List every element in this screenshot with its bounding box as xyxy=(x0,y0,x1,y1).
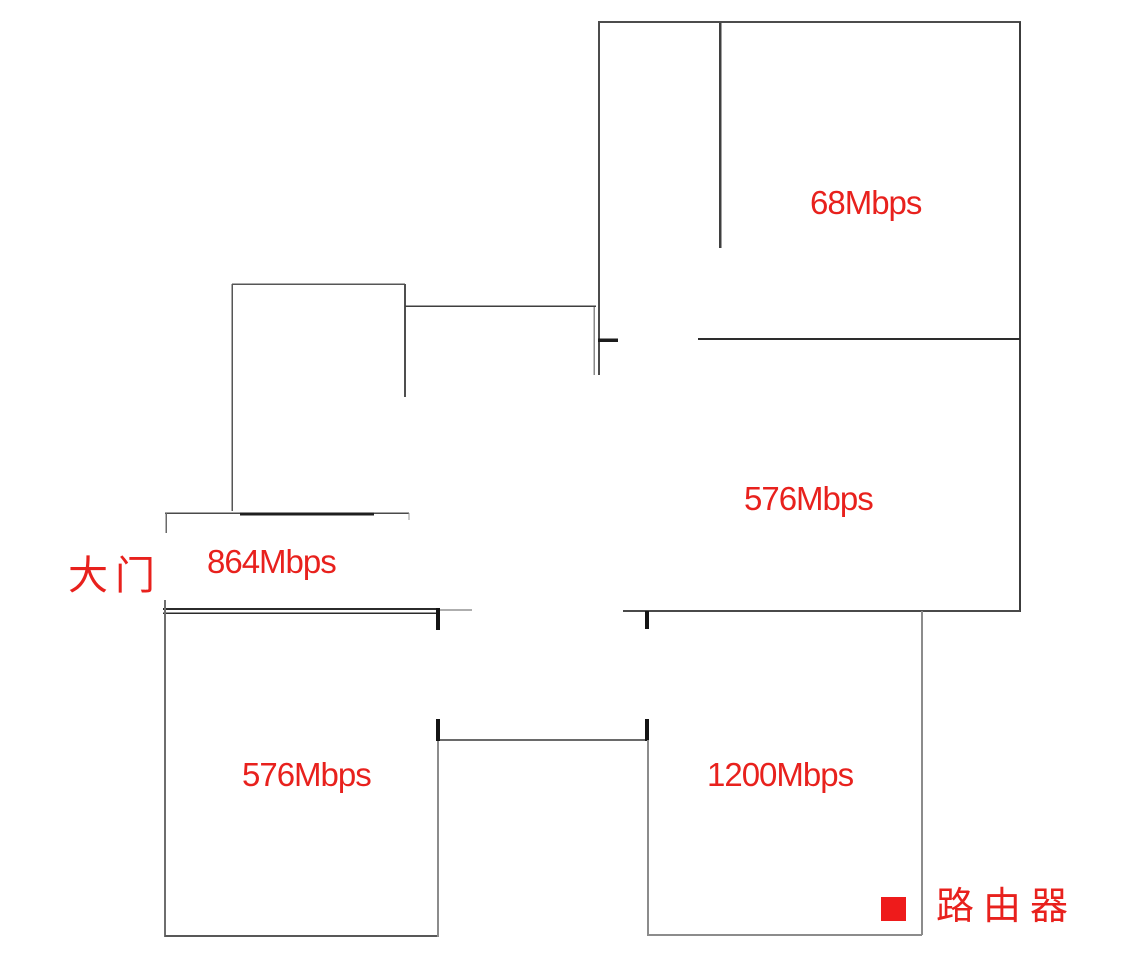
room-speed-entry-hall: 864Mbps xyxy=(207,545,336,578)
router-label: 路由器 xyxy=(936,888,1077,926)
room-speed-bottom-right: 1200Mbps xyxy=(707,758,853,791)
front-door-label: 大门 xyxy=(68,556,162,596)
walls-group xyxy=(163,22,1021,937)
room-speed-middle-right: 576Mbps xyxy=(744,482,873,515)
room-speed-bottom-left: 576Mbps xyxy=(242,758,371,791)
floorplan-canvas: 68Mbps 576Mbps 864Mbps 576Mbps 1200Mbps … xyxy=(0,0,1140,959)
floorplan-walls xyxy=(0,0,1140,959)
router-marker-icon xyxy=(881,897,906,921)
room-speed-top-right: 68Mbps xyxy=(810,186,921,219)
